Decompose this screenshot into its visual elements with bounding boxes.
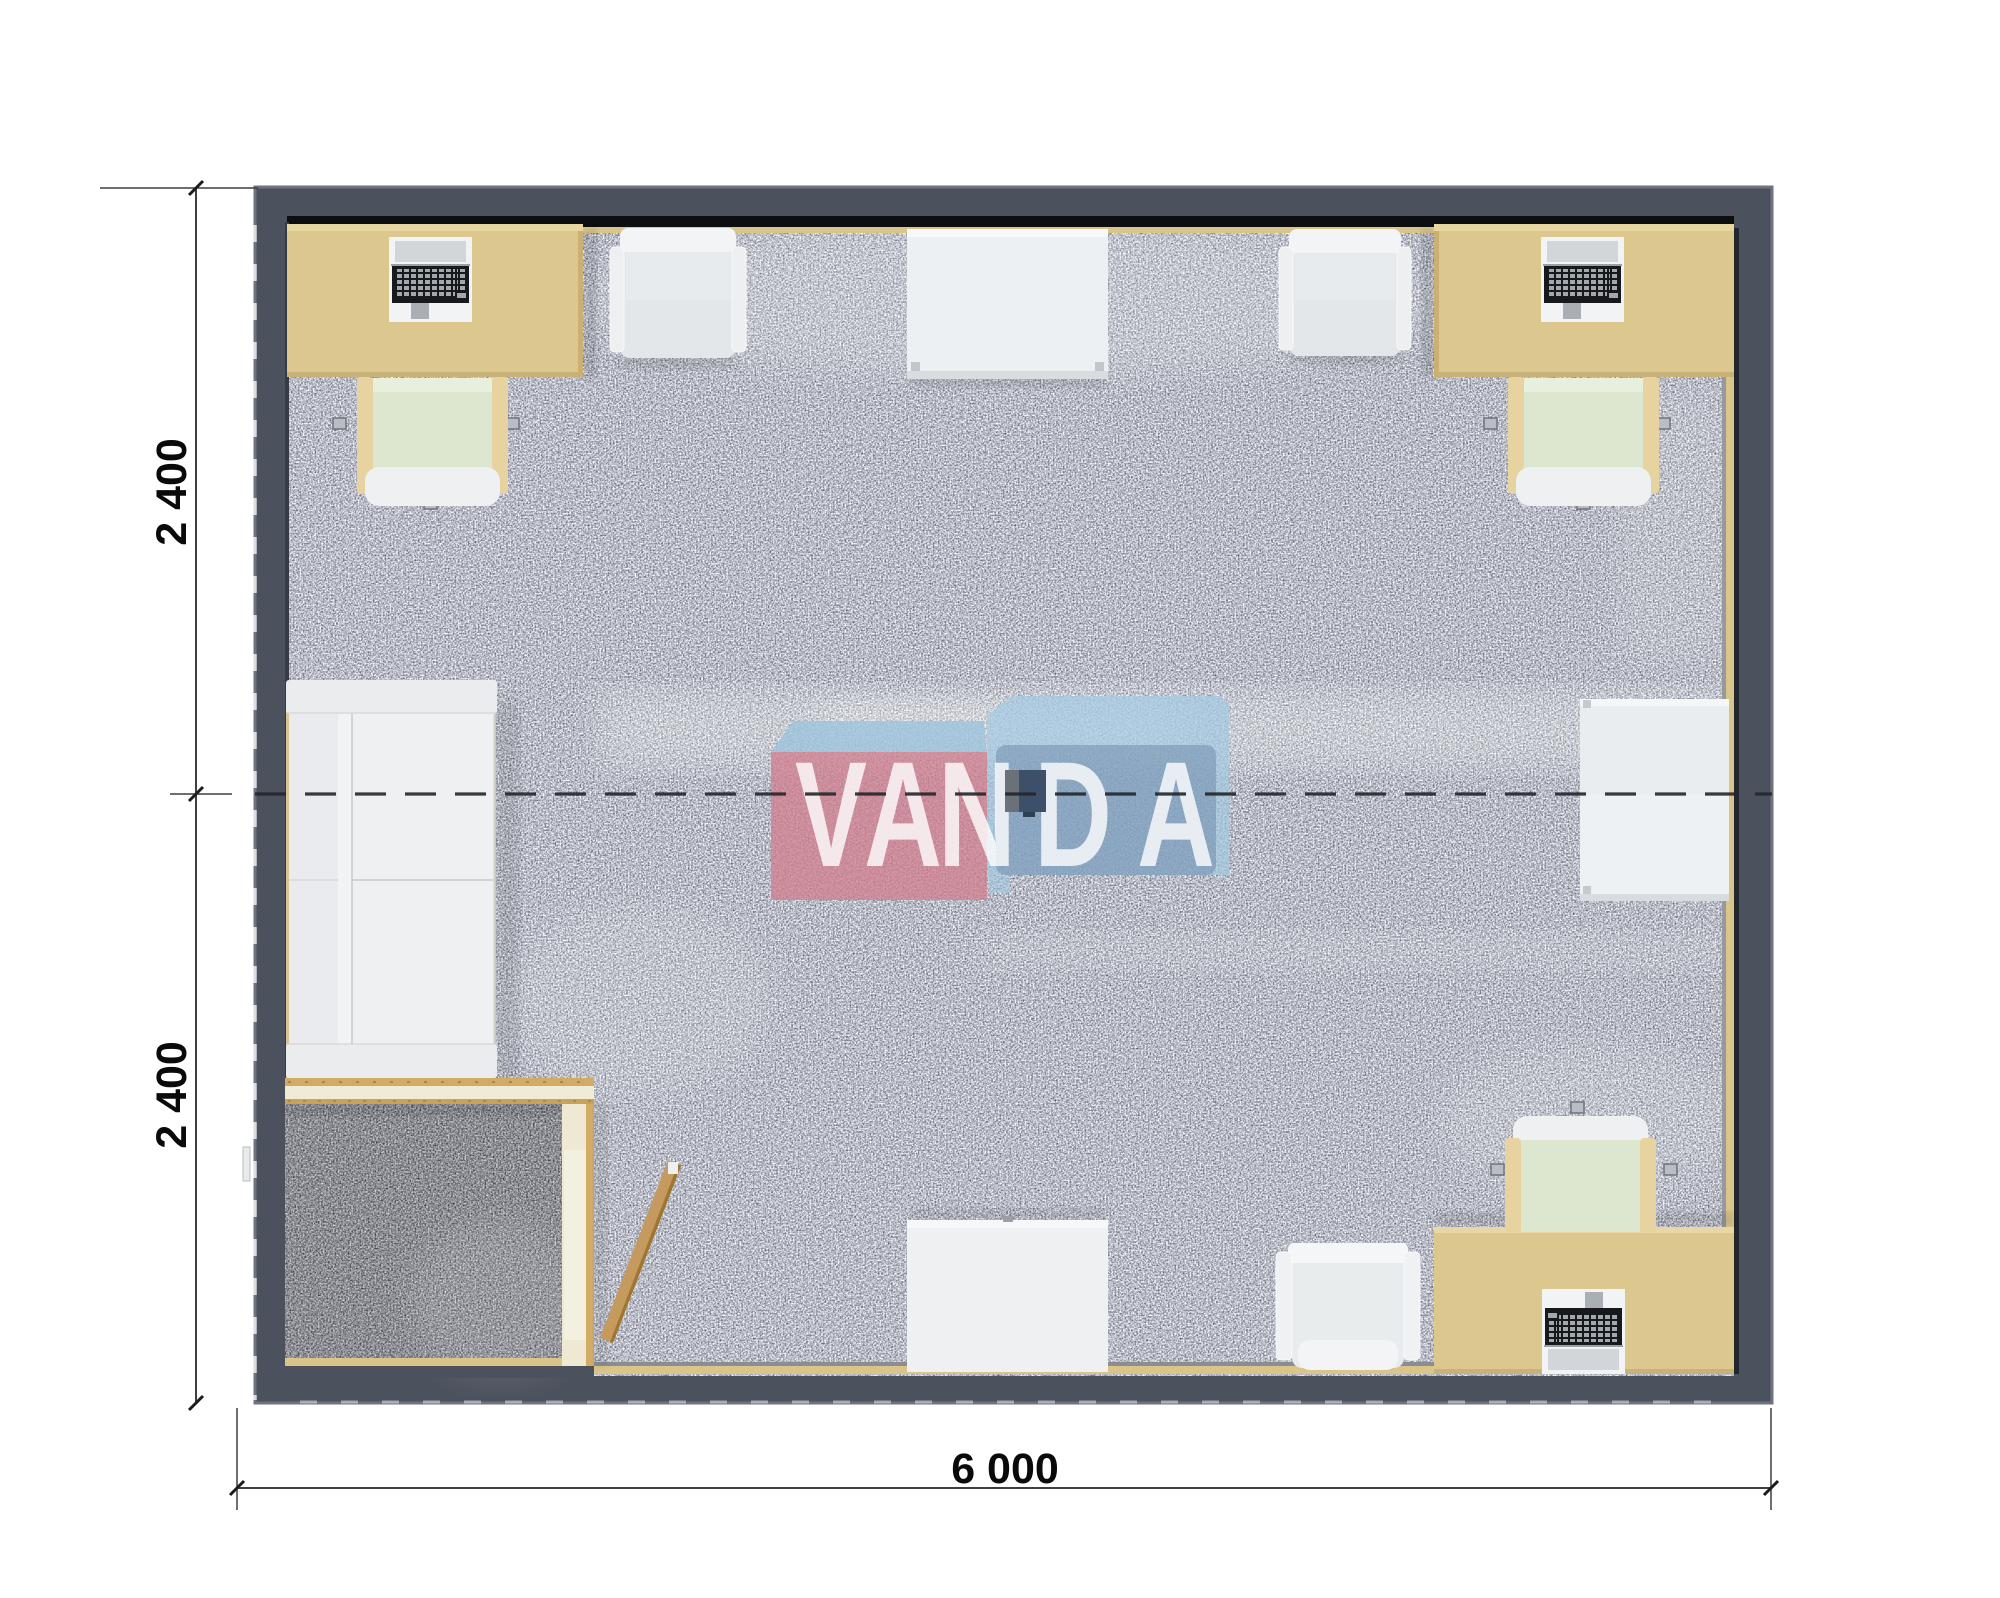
svg-text:A: A	[1137, 731, 1215, 899]
svg-text:6 000: 6 000	[951, 1445, 1059, 1493]
svg-text:A: A	[864, 731, 942, 899]
svg-text:2 400: 2 400	[148, 438, 196, 546]
svg-text:D: D	[1034, 731, 1112, 899]
svg-text:V: V	[795, 731, 867, 899]
svg-text:2 400: 2 400	[148, 1041, 196, 1149]
svg-text:N: N	[938, 731, 1016, 899]
